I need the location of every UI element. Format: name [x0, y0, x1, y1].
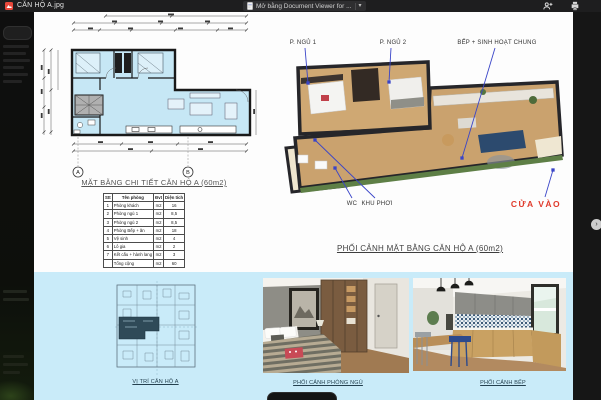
- label-kitchen-living: BẾP + SINH HOẠT CHUNG: [434, 40, 560, 46]
- table-header-cell: Stt: [104, 194, 113, 202]
- table-cell: Phòng khách: [112, 202, 153, 210]
- window: [531, 284, 559, 336]
- highlighted-unit: [119, 317, 159, 339]
- sidebar-dim-item: [3, 66, 24, 69]
- sidebar-dim-item: [3, 45, 29, 48]
- table-row: 3Phòng ngủ 2m28,5: [104, 218, 185, 226]
- label-bedroom1: P. NGỦ 1: [280, 40, 326, 46]
- sidebar-dim-item: [3, 73, 28, 76]
- table-cell: Lô gia: [112, 243, 153, 251]
- image-file-icon: [5, 2, 13, 10]
- table-row: Tổng cộngm260: [104, 259, 185, 267]
- table-header-cell: Diện tích: [164, 194, 185, 202]
- entrance-label: CỬA VÀO: [498, 199, 574, 209]
- perspective-title: PHỐI CẢNH MẶT BẰNG CĂN HỘ A (60m2): [320, 244, 520, 253]
- open-with-label: Mở bằng Document Viewer for ...: [256, 3, 352, 10]
- button-divider: [355, 3, 356, 10]
- table-cell: Kết cấu + hành lang: [112, 251, 153, 259]
- table-cell: m2: [154, 210, 164, 218]
- table-cell: 8,5: [164, 210, 185, 218]
- floor-plan-drawing: A B: [40, 13, 302, 183]
- table-cell: Tổng cộng: [112, 259, 153, 267]
- table-cell: m2: [154, 259, 164, 267]
- table-cell: 3: [164, 251, 185, 259]
- label-bedroom2: P. NGỦ 2: [370, 40, 416, 46]
- table-cell: m2: [154, 218, 164, 226]
- table-cell: 7: [104, 251, 113, 259]
- sidebar-dim-item: [3, 355, 24, 358]
- open-with-button[interactable]: Mở bằng Document Viewer for ... ▾: [243, 1, 366, 11]
- table-cell: 4: [164, 235, 185, 243]
- area-table: SttTên phòngĐvtDiện tích 1Phòng kháchm21…: [103, 193, 185, 268]
- table-cell: [104, 259, 113, 267]
- kitchen-photo: [413, 278, 566, 371]
- sidebar-dim-item: [3, 363, 28, 366]
- perspective-rendering: [283, 40, 573, 210]
- caption-kitchen: PHỐI CẢNH BẾP: [433, 380, 573, 386]
- table-row: 4Phòng Bếp + ănm218: [104, 226, 185, 234]
- render-wardrobe: [351, 68, 380, 102]
- background-foliage: [0, 380, 36, 400]
- sidebar-dim-item: [3, 371, 20, 374]
- table-cell: 1: [104, 202, 113, 210]
- table-header-cell: Tên phòng: [112, 194, 153, 202]
- area-table-head-row: SttTên phòngĐvtDiện tích: [104, 194, 185, 202]
- table-row: 5Vệ sinhm24: [104, 235, 185, 243]
- table-row: 1Phòng kháchm216: [104, 202, 185, 210]
- table-row: 6Lô giam22: [104, 243, 185, 251]
- sidebar-dim-item: [3, 59, 30, 62]
- table-cell: m2: [154, 235, 164, 243]
- dimmed-drive-sidebar: [0, 12, 34, 400]
- table-cell: 8,5: [164, 218, 185, 226]
- sidebar-dim-item: [3, 80, 22, 83]
- caption-location: VỊ TRÍ CĂN HỘ A: [95, 379, 216, 385]
- sidebar-new-button-dimmed: [3, 26, 32, 40]
- door: [375, 284, 397, 348]
- label-laundry: KHU PHƠI: [350, 201, 404, 207]
- axis-marker-b: B: [186, 170, 190, 176]
- table-cell: 2: [104, 210, 113, 218]
- table-cell: 4: [104, 226, 113, 234]
- bedroom-photo: [263, 278, 409, 373]
- table-cell: Vệ sinh: [112, 235, 153, 243]
- drive-preview-window: CĂN HỘ A.jpg Mở bằng Document Viewer for…: [0, 0, 601, 400]
- table-header-cell: Đvt: [154, 194, 164, 202]
- fireplace: [446, 314, 453, 330]
- sidebar-dim-item: [3, 290, 27, 293]
- table-cell: m2: [154, 226, 164, 234]
- zoom-controls-pill[interactable]: [267, 392, 337, 400]
- table-cell: 16: [164, 202, 185, 210]
- document-page: A B MẶT BẰNG CHI TIẾT CĂN HỘ A (60m2) St…: [34, 12, 573, 391]
- add-person-icon[interactable]: [543, 1, 553, 11]
- table-cell: 6: [104, 243, 113, 251]
- kitchen-counter-symbol: [126, 126, 236, 133]
- area-table-body: 1Phòng kháchm2162Phòng ngủ 1m28,53Phòng …: [104, 202, 185, 268]
- plan-title: MẶT BẰNG CHI TIẾT CĂN HỘ A (60m2): [59, 178, 249, 187]
- table-cell: Phòng Bếp + ăn: [112, 226, 153, 234]
- sidebar-dim-item: [3, 298, 29, 301]
- table-cell: 3: [104, 218, 113, 226]
- table-cell: Phòng ngủ 2: [112, 218, 153, 226]
- caption-bedroom: PHỐI CẢNH PHÒNG NGỦ: [258, 380, 398, 386]
- table-cell: m2: [154, 251, 164, 259]
- table-cell: 2: [164, 243, 185, 251]
- building-location-plan: [115, 281, 199, 375]
- loggia-symbol: [75, 95, 103, 115]
- axis-marker-a: A: [76, 170, 80, 176]
- file-name: CĂN HỘ A.jpg: [17, 0, 64, 12]
- next-page-button[interactable]: ›: [591, 219, 601, 230]
- wardrobe-symbol: [115, 53, 122, 73]
- sidebar-dim-item: [3, 52, 26, 55]
- table-cell: 18: [164, 226, 185, 234]
- table-row: 7Kết cấu + hành langm23: [104, 251, 185, 259]
- table-cell: m2: [154, 202, 164, 210]
- table-cell: 5: [104, 235, 113, 243]
- table-cell: Phòng ngủ 1: [112, 210, 153, 218]
- preview-toolbar: CĂN HỘ A.jpg Mở bằng Document Viewer for…: [0, 0, 601, 12]
- bottom-band: VỊ TRÍ CĂN HỘ A: [34, 272, 573, 400]
- table-cell: 60: [164, 259, 185, 267]
- document-viewer-icon: [247, 2, 253, 10]
- dropdown-caret-icon[interactable]: ▾: [359, 1, 362, 11]
- print-icon[interactable]: [570, 1, 580, 11]
- plant: [427, 311, 439, 325]
- table-row: 2Phòng ngủ 1m28,5: [104, 210, 185, 218]
- table-cell: m2: [154, 243, 164, 251]
